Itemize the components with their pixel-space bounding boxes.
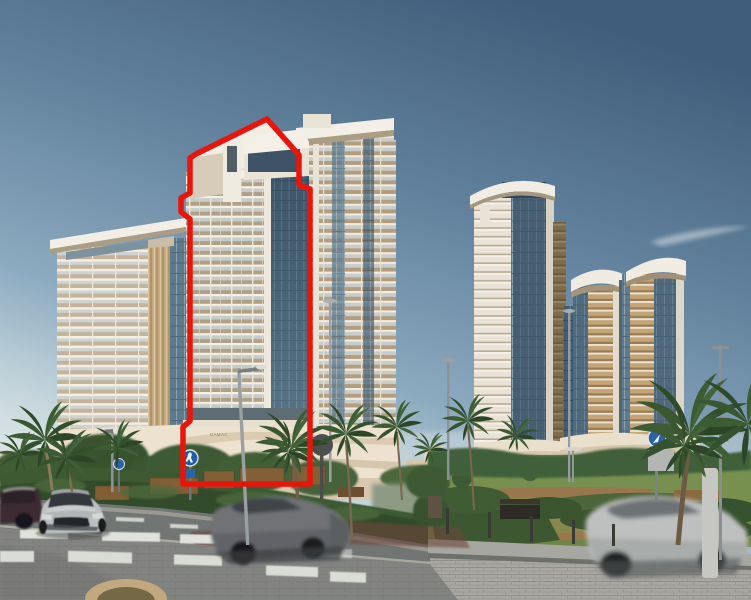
svg-text:DAMAC: DAMAC bbox=[210, 432, 228, 437]
